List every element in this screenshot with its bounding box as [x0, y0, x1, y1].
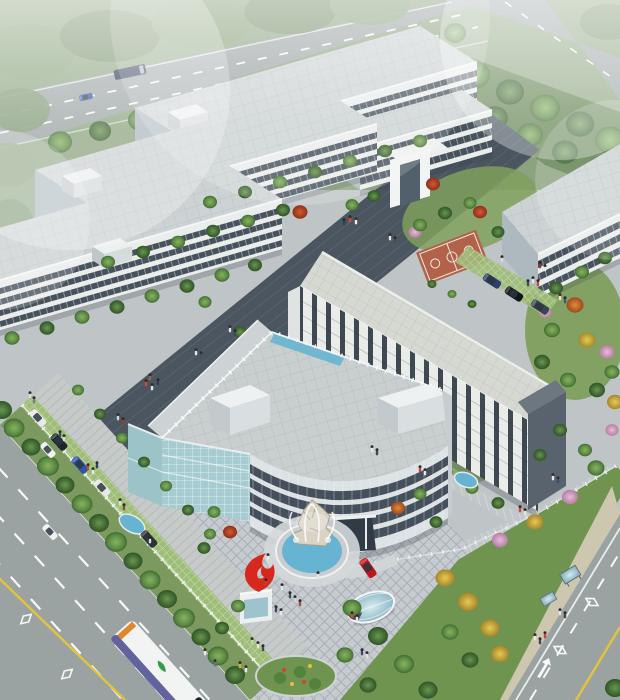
tree — [4, 419, 25, 438]
tree — [48, 131, 72, 153]
person — [251, 637, 254, 644]
person — [544, 264, 547, 271]
tree-yellow — [436, 569, 455, 586]
person — [145, 379, 148, 386]
tree-red — [223, 526, 237, 539]
person — [204, 648, 207, 655]
tree — [578, 444, 592, 457]
person — [157, 378, 160, 385]
person — [376, 448, 379, 455]
tree — [138, 457, 150, 468]
shrub — [309, 678, 321, 690]
tree — [105, 532, 127, 552]
person — [289, 591, 292, 598]
tree — [72, 385, 84, 396]
tree — [157, 590, 177, 608]
tree — [605, 365, 620, 379]
person — [527, 279, 530, 286]
person — [559, 293, 562, 300]
tree — [124, 552, 143, 569]
tree — [413, 135, 427, 148]
person — [123, 503, 126, 510]
tree — [208, 647, 229, 666]
tree — [182, 505, 194, 516]
tree — [180, 279, 195, 293]
tree — [343, 155, 357, 168]
flowers — [308, 664, 312, 668]
tree — [360, 677, 377, 692]
tree — [588, 460, 605, 475]
tree — [549, 282, 563, 295]
person — [239, 661, 242, 668]
person — [539, 261, 542, 268]
person — [96, 461, 99, 468]
person — [524, 508, 527, 515]
tree — [492, 497, 505, 509]
person — [537, 279, 540, 286]
person — [214, 659, 217, 666]
shrub — [274, 672, 286, 684]
person — [63, 434, 66, 441]
person — [519, 505, 522, 512]
tree — [136, 246, 150, 259]
tree — [346, 199, 359, 211]
person — [552, 473, 555, 480]
tree-yellow — [527, 514, 544, 529]
person — [149, 373, 152, 380]
person — [389, 233, 392, 240]
person — [564, 611, 567, 618]
tree — [72, 495, 93, 514]
tree — [160, 481, 172, 492]
tree — [553, 424, 567, 437]
tree — [241, 215, 255, 228]
tree — [575, 266, 589, 279]
tree — [215, 268, 230, 282]
tree — [566, 111, 594, 136]
tree — [430, 516, 443, 528]
tree — [231, 600, 245, 613]
tree — [208, 506, 221, 518]
tree — [438, 207, 452, 220]
tree-yellow — [491, 646, 509, 662]
person — [87, 463, 90, 470]
person — [539, 637, 542, 644]
tree — [534, 355, 550, 369]
tree — [496, 79, 524, 104]
tree-mass — [152, 0, 248, 48]
tree — [101, 256, 115, 269]
tree — [40, 321, 55, 335]
person — [349, 215, 352, 222]
tree — [110, 300, 125, 314]
person — [117, 413, 120, 420]
person — [534, 633, 537, 640]
person — [281, 583, 284, 590]
tree — [215, 622, 229, 635]
aerial-campus-rendering — [0, 0, 620, 700]
person — [419, 465, 422, 472]
tree — [116, 433, 128, 444]
tree-orange — [391, 502, 405, 515]
tree-pink — [562, 490, 578, 504]
tree — [140, 571, 161, 590]
person — [29, 391, 32, 398]
tree-pink — [600, 345, 615, 359]
tree — [378, 145, 392, 158]
tree — [145, 289, 160, 303]
tree — [492, 226, 505, 238]
flowers — [302, 680, 306, 684]
person — [544, 631, 547, 638]
tree — [22, 438, 41, 455]
person — [356, 614, 359, 621]
spray-mist — [296, 512, 328, 532]
person — [564, 296, 567, 303]
person — [262, 644, 265, 651]
tree — [94, 409, 106, 420]
person — [351, 611, 354, 618]
person — [200, 351, 203, 358]
tree — [5, 331, 20, 345]
person — [245, 665, 248, 672]
pavilion-glazing — [400, 159, 420, 206]
tree-red — [473, 206, 487, 219]
tree-mass — [60, 10, 160, 62]
person — [265, 578, 268, 585]
tree — [37, 456, 59, 476]
tree — [419, 681, 438, 698]
tree — [308, 166, 322, 179]
person — [424, 468, 427, 475]
tree — [368, 627, 388, 645]
flower-planter — [256, 656, 336, 696]
tree-yellow — [458, 593, 478, 611]
tree-red — [293, 205, 308, 219]
flowers — [282, 668, 286, 672]
tree — [589, 383, 605, 397]
tree — [394, 655, 414, 673]
tree — [414, 488, 427, 500]
tree — [273, 176, 287, 189]
person — [557, 476, 560, 483]
person — [59, 430, 62, 437]
tree — [206, 225, 220, 238]
person — [355, 217, 358, 224]
tree — [248, 259, 262, 272]
tree — [337, 647, 354, 662]
tree — [368, 190, 381, 202]
tree — [276, 204, 290, 217]
person — [33, 396, 36, 403]
shrub — [468, 300, 477, 308]
tree — [530, 95, 560, 122]
tree — [534, 449, 547, 461]
person — [267, 553, 270, 560]
shrub — [428, 280, 437, 288]
tree-red — [426, 178, 440, 191]
person — [317, 571, 320, 578]
person — [195, 348, 198, 355]
tree-yellow — [481, 619, 500, 636]
person — [361, 648, 364, 655]
tree — [203, 196, 217, 209]
foam — [325, 537, 331, 543]
tree — [204, 529, 216, 540]
tree — [199, 296, 212, 308]
tree — [560, 373, 576, 387]
tree-orange — [567, 297, 584, 312]
person — [532, 276, 535, 283]
person — [294, 595, 297, 602]
tree — [464, 197, 477, 209]
tree — [56, 476, 75, 493]
person — [559, 608, 562, 615]
gatehouse-glazing — [244, 597, 268, 619]
tree — [192, 628, 211, 645]
tree — [598, 252, 612, 265]
tree — [544, 323, 560, 337]
tree — [89, 514, 109, 532]
tree — [444, 23, 466, 43]
person — [501, 255, 504, 262]
tree-pink — [492, 533, 508, 547]
tree — [89, 121, 111, 141]
person — [122, 417, 125, 424]
person — [371, 445, 374, 452]
person — [92, 467, 95, 474]
person — [257, 641, 260, 648]
person — [280, 608, 283, 615]
flowers — [290, 682, 294, 686]
tree — [171, 236, 185, 249]
tree-pink — [606, 424, 619, 436]
tree — [75, 310, 90, 324]
tree — [225, 666, 245, 684]
foam — [293, 537, 299, 543]
person — [229, 325, 232, 332]
person — [119, 498, 122, 505]
person — [343, 218, 346, 225]
tree — [173, 608, 195, 628]
person — [394, 236, 397, 243]
person — [299, 599, 302, 606]
tree — [198, 542, 211, 554]
tree — [442, 624, 459, 639]
person — [275, 605, 278, 612]
shrub — [448, 290, 457, 298]
person — [149, 536, 152, 543]
tree-yellow — [579, 332, 596, 347]
rendering-canvas — [0, 0, 620, 700]
tree — [238, 186, 252, 199]
person — [366, 651, 369, 658]
tree — [413, 219, 427, 232]
person — [234, 329, 237, 336]
tree — [462, 652, 479, 667]
shrub — [294, 666, 306, 678]
tree — [552, 140, 578, 163]
person — [151, 383, 154, 390]
